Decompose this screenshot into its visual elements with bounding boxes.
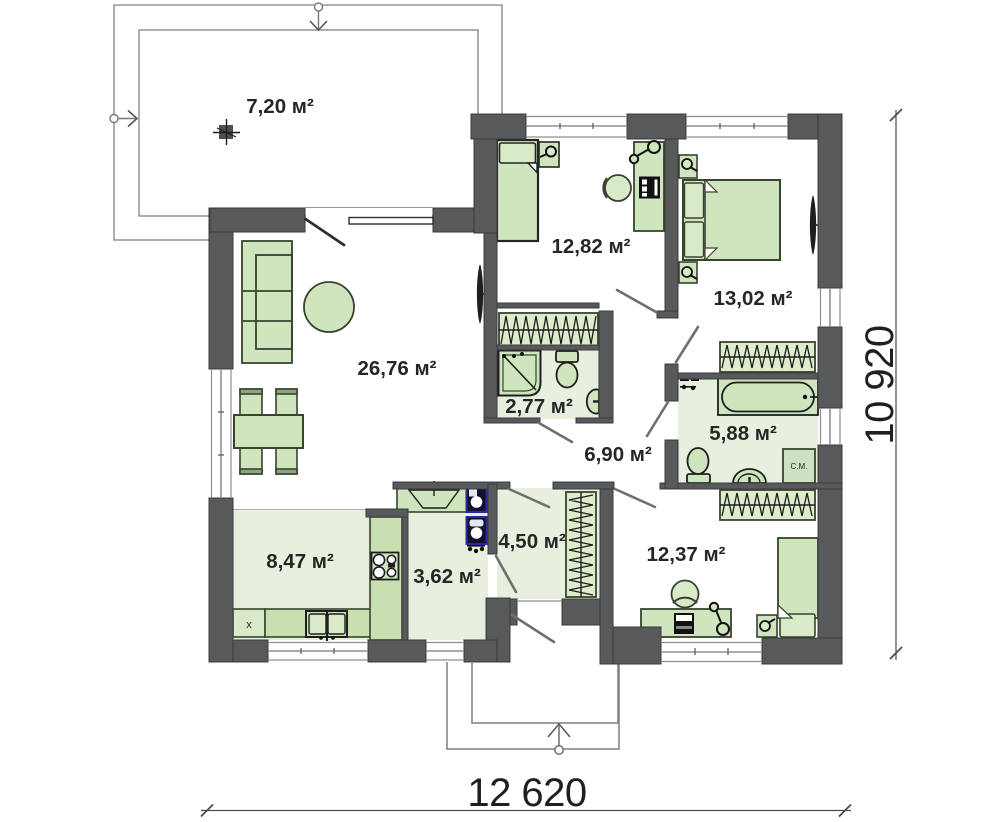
svg-text:12,82 м²: 12,82 м²	[552, 235, 631, 258]
svg-text:8,47 м²: 8,47 м²	[266, 550, 334, 573]
svg-text:5,88 м²: 5,88 м²	[709, 422, 777, 445]
svg-text:3,62 м²: 3,62 м²	[413, 565, 481, 588]
svg-text:7,20 м²: 7,20 м²	[246, 95, 314, 118]
svg-text:10 920: 10 920	[858, 325, 902, 444]
svg-text:26,76 м²: 26,76 м²	[358, 357, 437, 380]
svg-text:C.M.: C.M.	[791, 462, 808, 471]
svg-text:x: x	[246, 619, 252, 631]
svg-text:6,90 м²: 6,90 м²	[584, 443, 652, 466]
svg-text:4,50 м²: 4,50 м²	[498, 530, 566, 553]
svg-text:2,77 м²: 2,77 м²	[505, 395, 573, 418]
svg-text:12 620: 12 620	[467, 771, 586, 815]
svg-text:12,37 м²: 12,37 м²	[647, 543, 726, 566]
svg-text:13,02 м²: 13,02 м²	[714, 287, 793, 310]
